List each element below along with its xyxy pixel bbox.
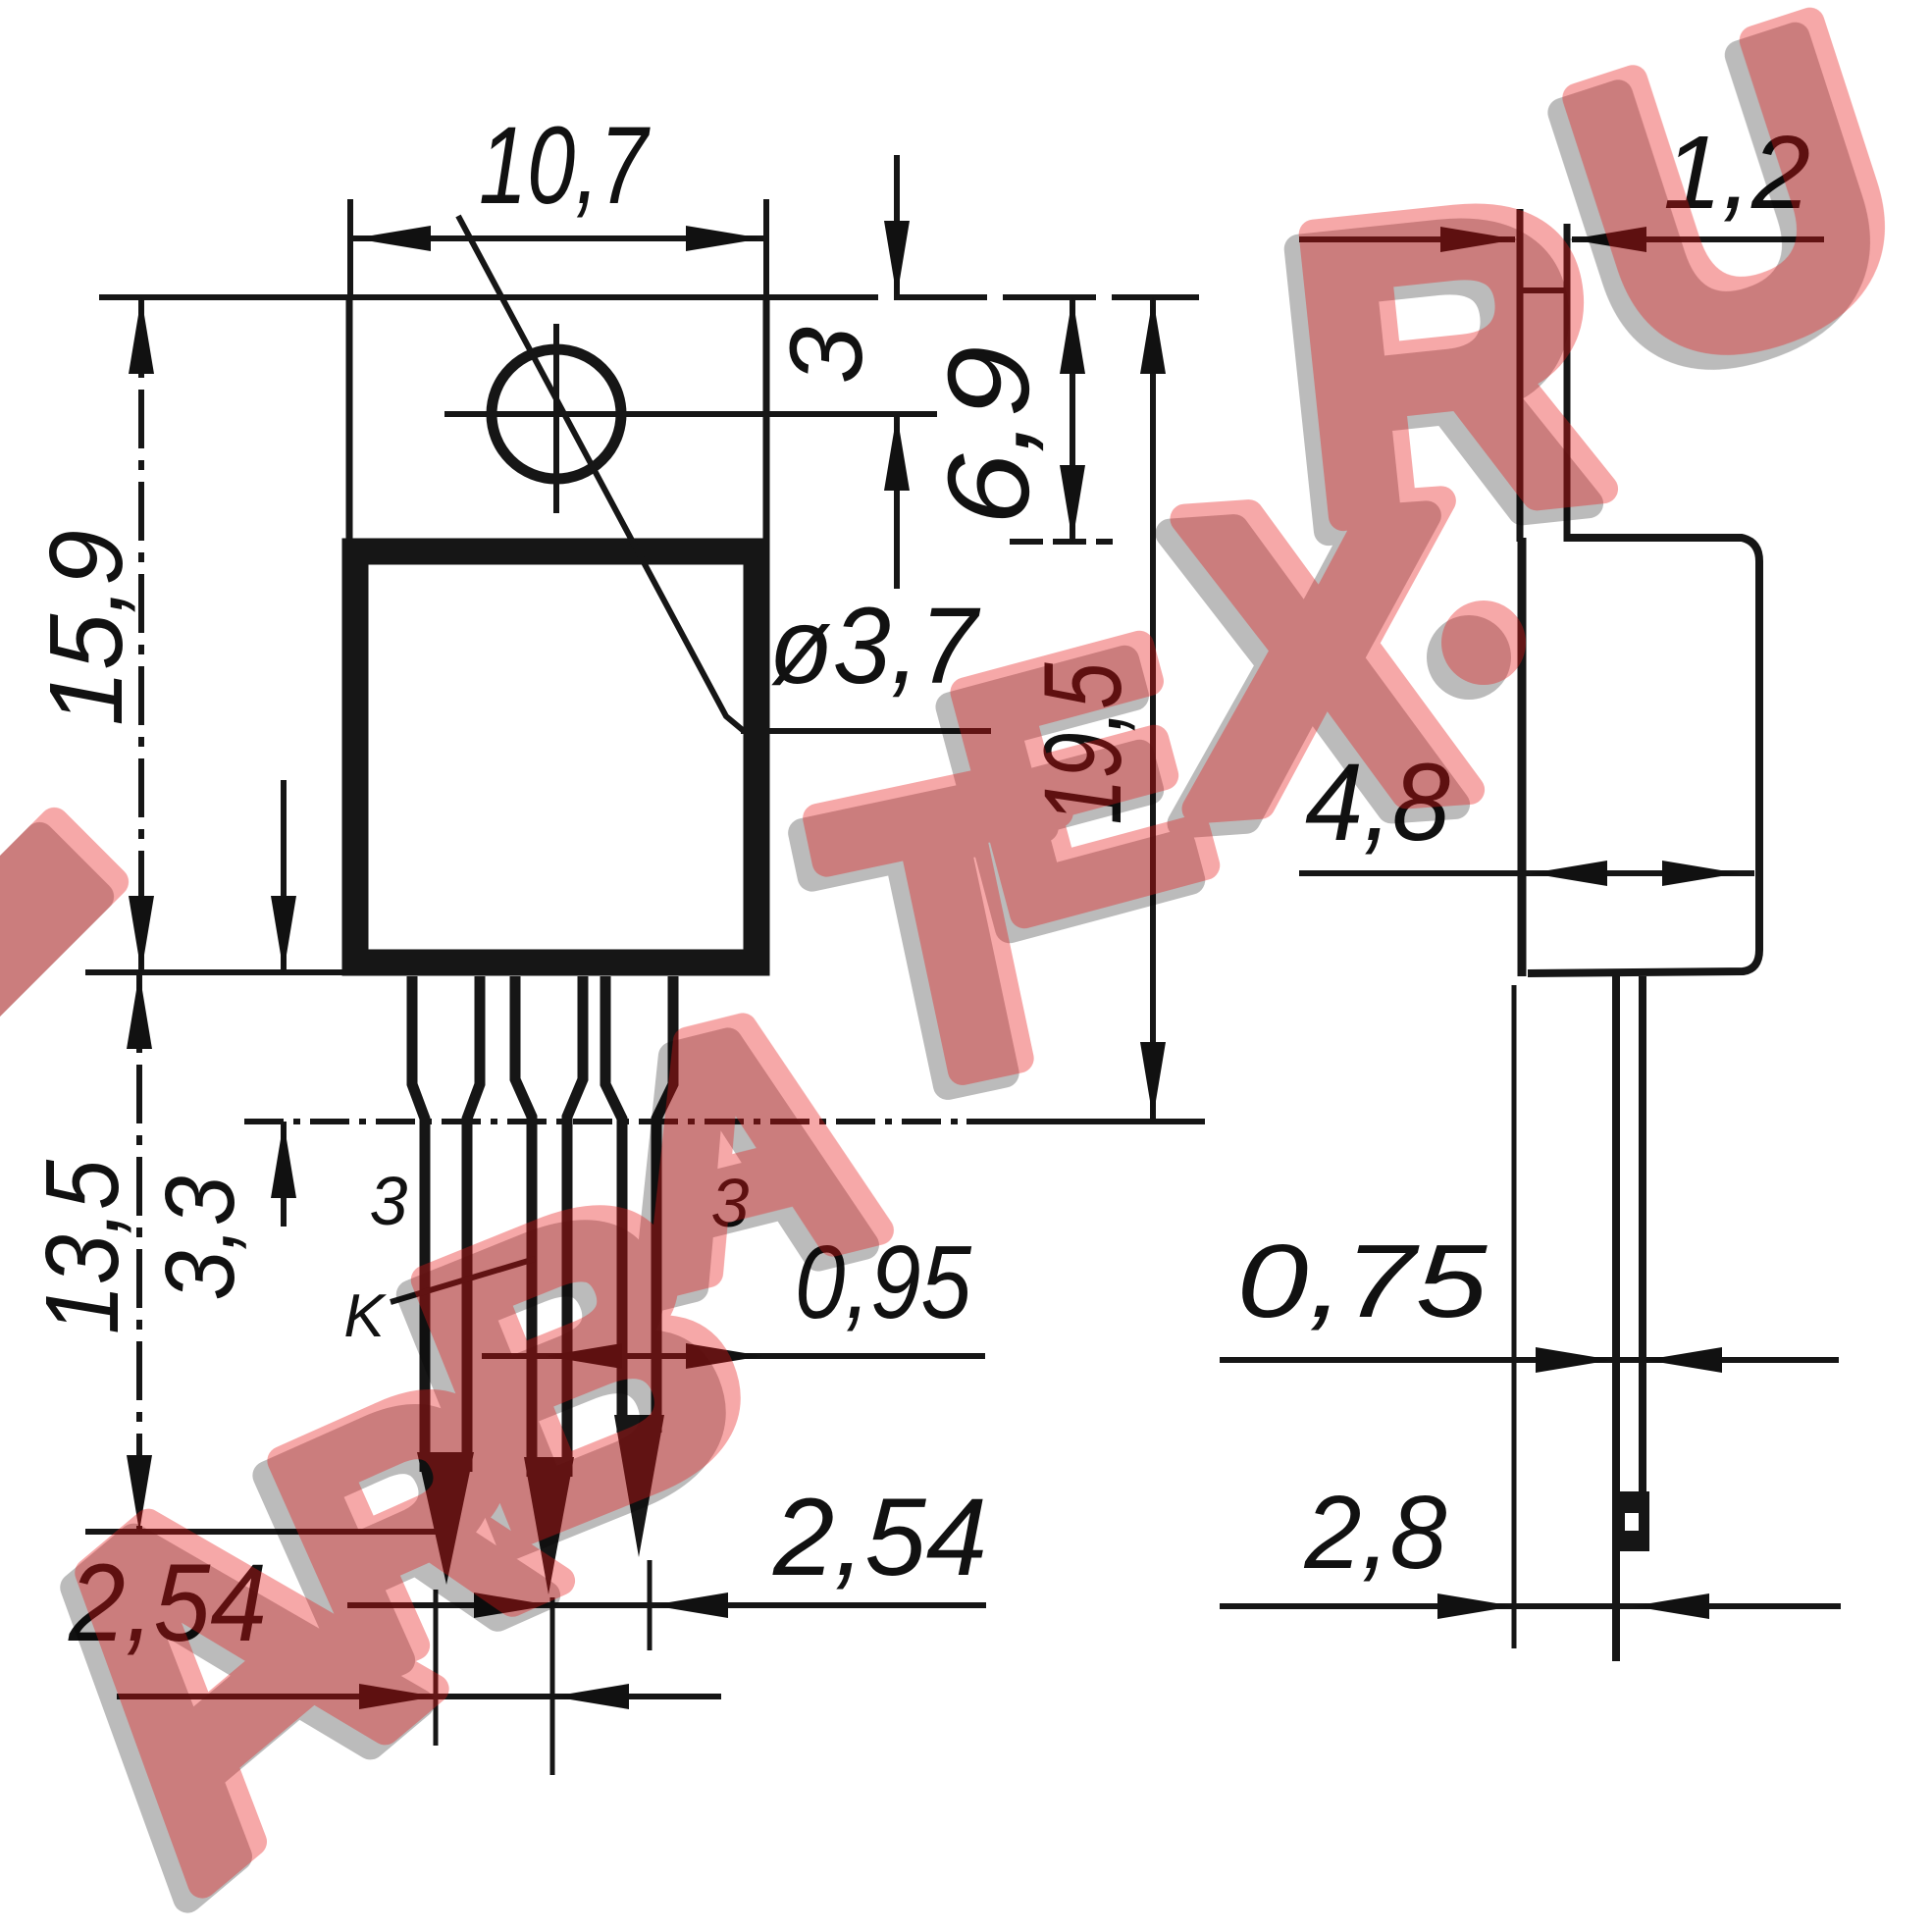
svg-text:R: R [1277, 118, 1621, 606]
svg-text:6,9: 6,9 [924, 346, 1054, 526]
svg-text:15,9: 15,9 [28, 530, 144, 726]
svg-text:0,75: 0,75 [1237, 1224, 1488, 1339]
svg-text:13,5: 13,5 [25, 1159, 140, 1334]
svg-text:2,8: 2,8 [1304, 1475, 1447, 1591]
svg-text:3: 3 [769, 327, 884, 384]
svg-text:10,7: 10,7 [479, 104, 651, 227]
svg-text:2,54: 2,54 [772, 1476, 987, 1598]
svg-text:3,3: 3,3 [145, 1176, 255, 1301]
